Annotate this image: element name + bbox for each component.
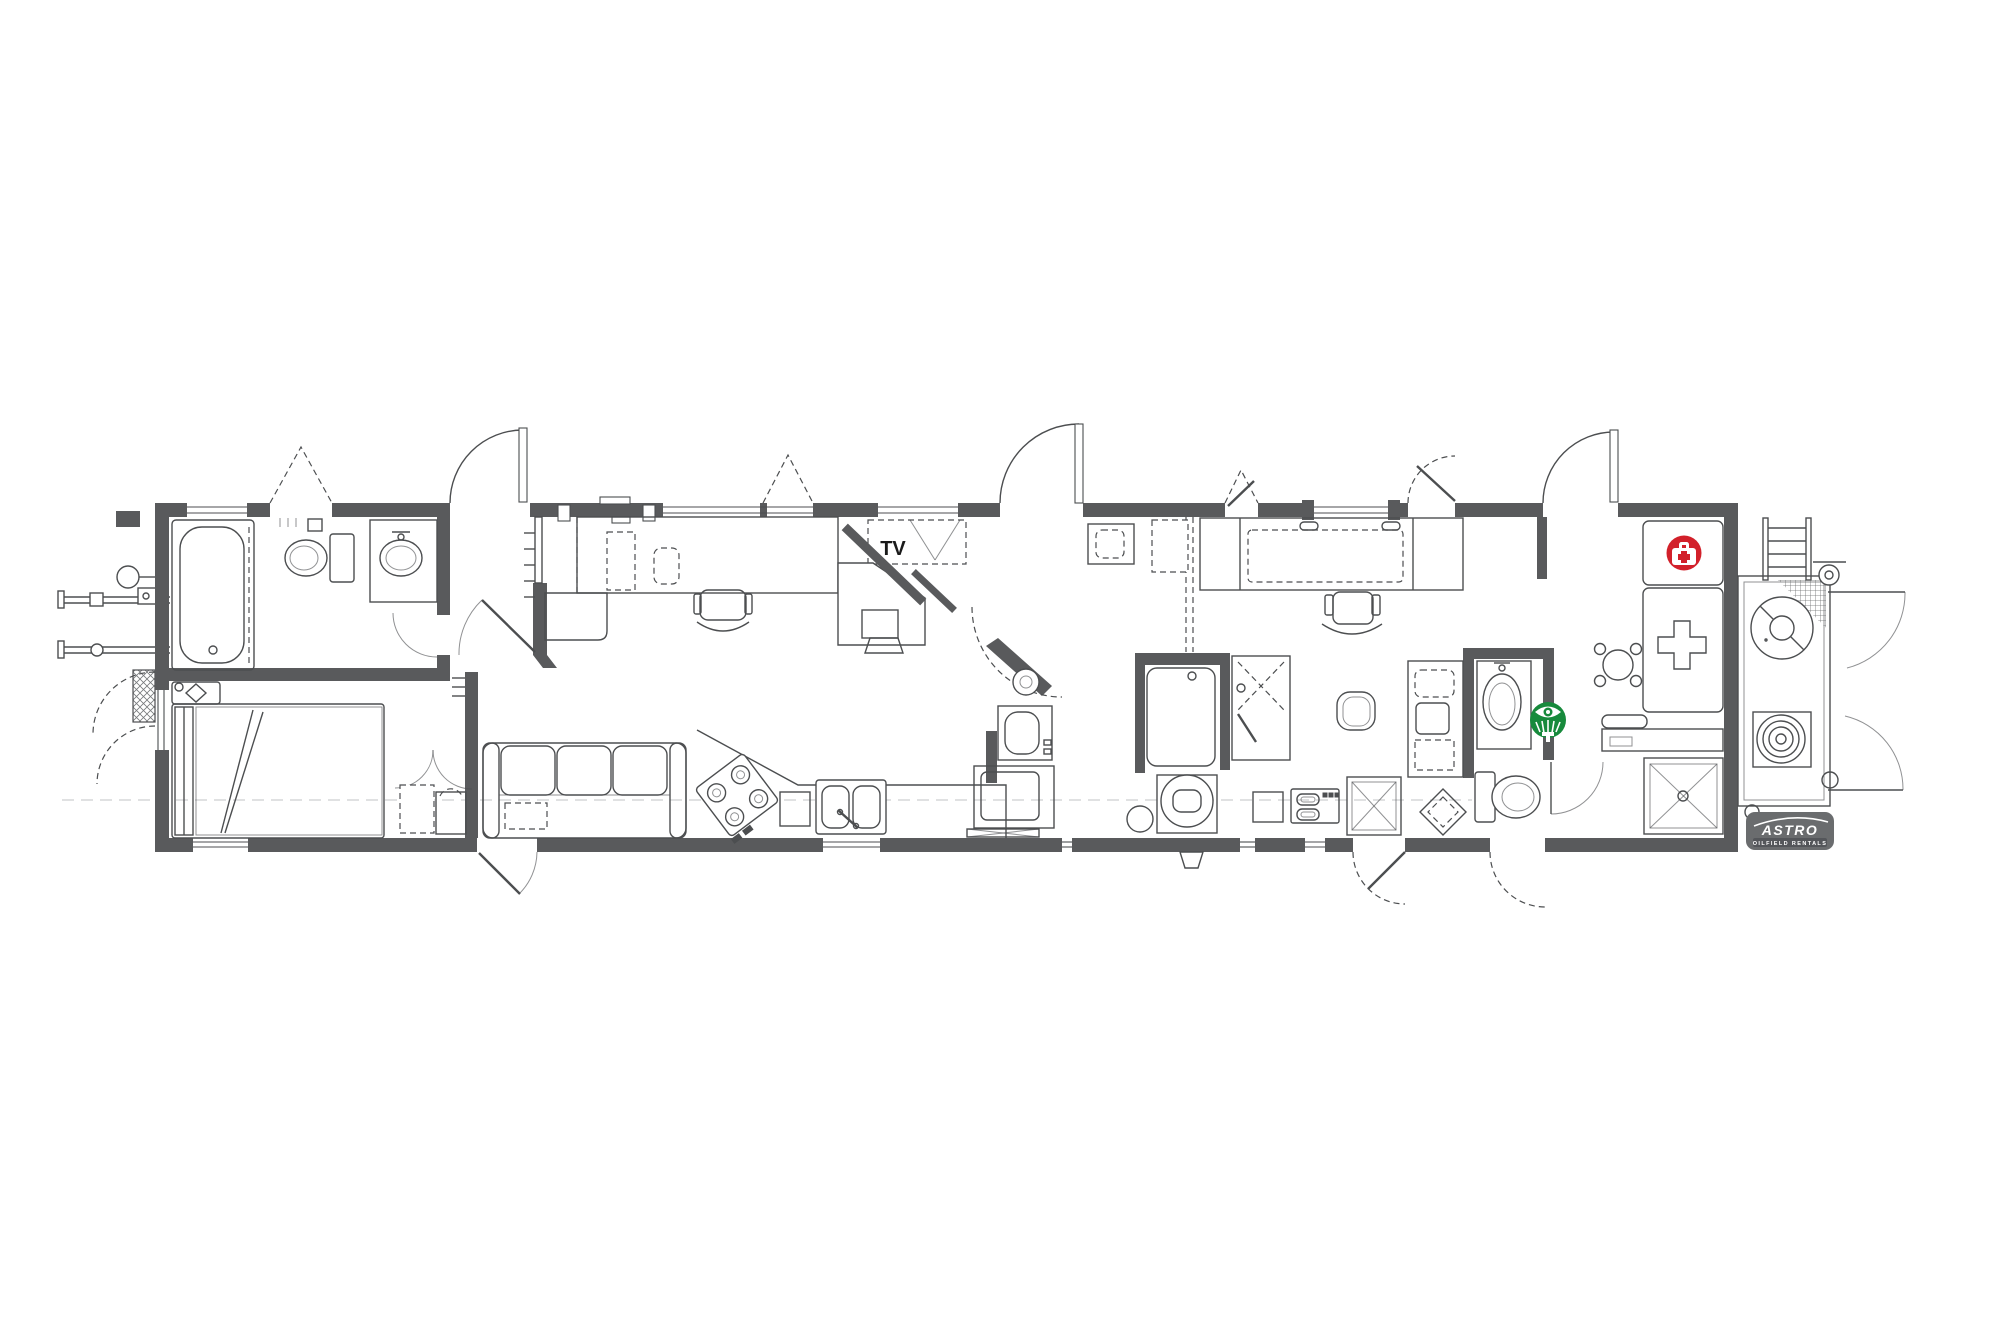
desk-chair bbox=[694, 590, 752, 631]
laundry-sink bbox=[1347, 777, 1401, 835]
bed bbox=[172, 704, 384, 838]
stool bbox=[1337, 692, 1375, 730]
floor-drain bbox=[1127, 806, 1153, 832]
vanity-sink-2 bbox=[1477, 661, 1531, 749]
mechanical-room bbox=[1738, 518, 1905, 819]
window bbox=[1062, 842, 1072, 847]
exterior-door bbox=[479, 852, 537, 894]
window bbox=[1305, 842, 1325, 847]
brand-logo: ASTRO OILFIELD RENTALS bbox=[1746, 812, 1834, 850]
blower-unit bbox=[1753, 712, 1811, 767]
entry-steps bbox=[133, 670, 155, 722]
floor-plan-svg: TV ASTRO OILFIELD RENTALS bbox=[0, 0, 2000, 1334]
exterior-door bbox=[1543, 430, 1618, 503]
access-ladder bbox=[1763, 518, 1811, 580]
pantry-cabinet bbox=[998, 706, 1052, 760]
door bbox=[1408, 456, 1455, 503]
office-chair bbox=[1322, 592, 1382, 634]
awning-swing bbox=[763, 455, 813, 503]
eyewash-icon bbox=[1530, 702, 1566, 742]
door-sill-marks bbox=[280, 518, 322, 531]
floor-plan-image: TV ASTRO OILFIELD RENTALS bbox=[0, 0, 2000, 1334]
kitchen-sink bbox=[816, 780, 886, 834]
window bbox=[1314, 507, 1388, 513]
office-desk bbox=[1152, 518, 1463, 590]
side-table bbox=[1253, 792, 1283, 822]
chair-diagonal bbox=[1420, 789, 1466, 835]
tv-label: TV bbox=[880, 538, 906, 560]
round-table bbox=[1595, 644, 1642, 687]
counter bbox=[1602, 715, 1723, 751]
window bbox=[878, 507, 958, 513]
compartment-door-swing bbox=[97, 726, 155, 784]
stove bbox=[694, 753, 783, 843]
shower-2 bbox=[1644, 758, 1723, 834]
nightstand bbox=[172, 682, 220, 704]
entry-bench bbox=[1088, 524, 1134, 564]
washer bbox=[1147, 668, 1215, 766]
water-cooler bbox=[1013, 669, 1039, 695]
shower bbox=[1232, 656, 1290, 760]
vanity-sink bbox=[370, 520, 437, 602]
window bbox=[193, 842, 248, 847]
dryer bbox=[1157, 775, 1217, 868]
door-swing bbox=[1490, 852, 1545, 907]
window bbox=[158, 690, 164, 750]
first-aid-icon bbox=[1667, 536, 1702, 571]
bathroom2-door bbox=[1551, 762, 1603, 814]
hvac-fan bbox=[1751, 597, 1813, 659]
awning-swing bbox=[270, 447, 332, 503]
sofa bbox=[483, 743, 686, 838]
junction-box bbox=[116, 511, 140, 527]
toilet-2 bbox=[1475, 772, 1540, 822]
logo-tagline-text: OILFIELD RENTALS bbox=[1753, 841, 1828, 847]
closet bbox=[395, 678, 472, 834]
medical-cross-symbol bbox=[1658, 621, 1706, 669]
storage-cabinet bbox=[1408, 661, 1463, 777]
door bbox=[1225, 470, 1258, 506]
mech-doors bbox=[1828, 592, 1905, 790]
exterior-door bbox=[450, 428, 527, 503]
bedroom-door bbox=[459, 600, 535, 655]
window bbox=[187, 507, 247, 513]
exterior-door bbox=[1000, 424, 1083, 503]
window bbox=[1240, 842, 1255, 847]
bathroom-door bbox=[393, 613, 437, 657]
exterior-equipment-left bbox=[58, 511, 170, 784]
cooktop bbox=[1291, 789, 1339, 823]
refrigerator bbox=[967, 766, 1054, 837]
base-cabinet bbox=[780, 792, 810, 826]
door bbox=[1353, 852, 1405, 904]
window bbox=[663, 507, 813, 513]
window bbox=[823, 842, 880, 847]
entry-desk bbox=[545, 517, 838, 640]
toilet bbox=[285, 534, 354, 582]
logo-brand-text: ASTRO bbox=[1761, 822, 1819, 838]
bathtub bbox=[172, 520, 254, 670]
